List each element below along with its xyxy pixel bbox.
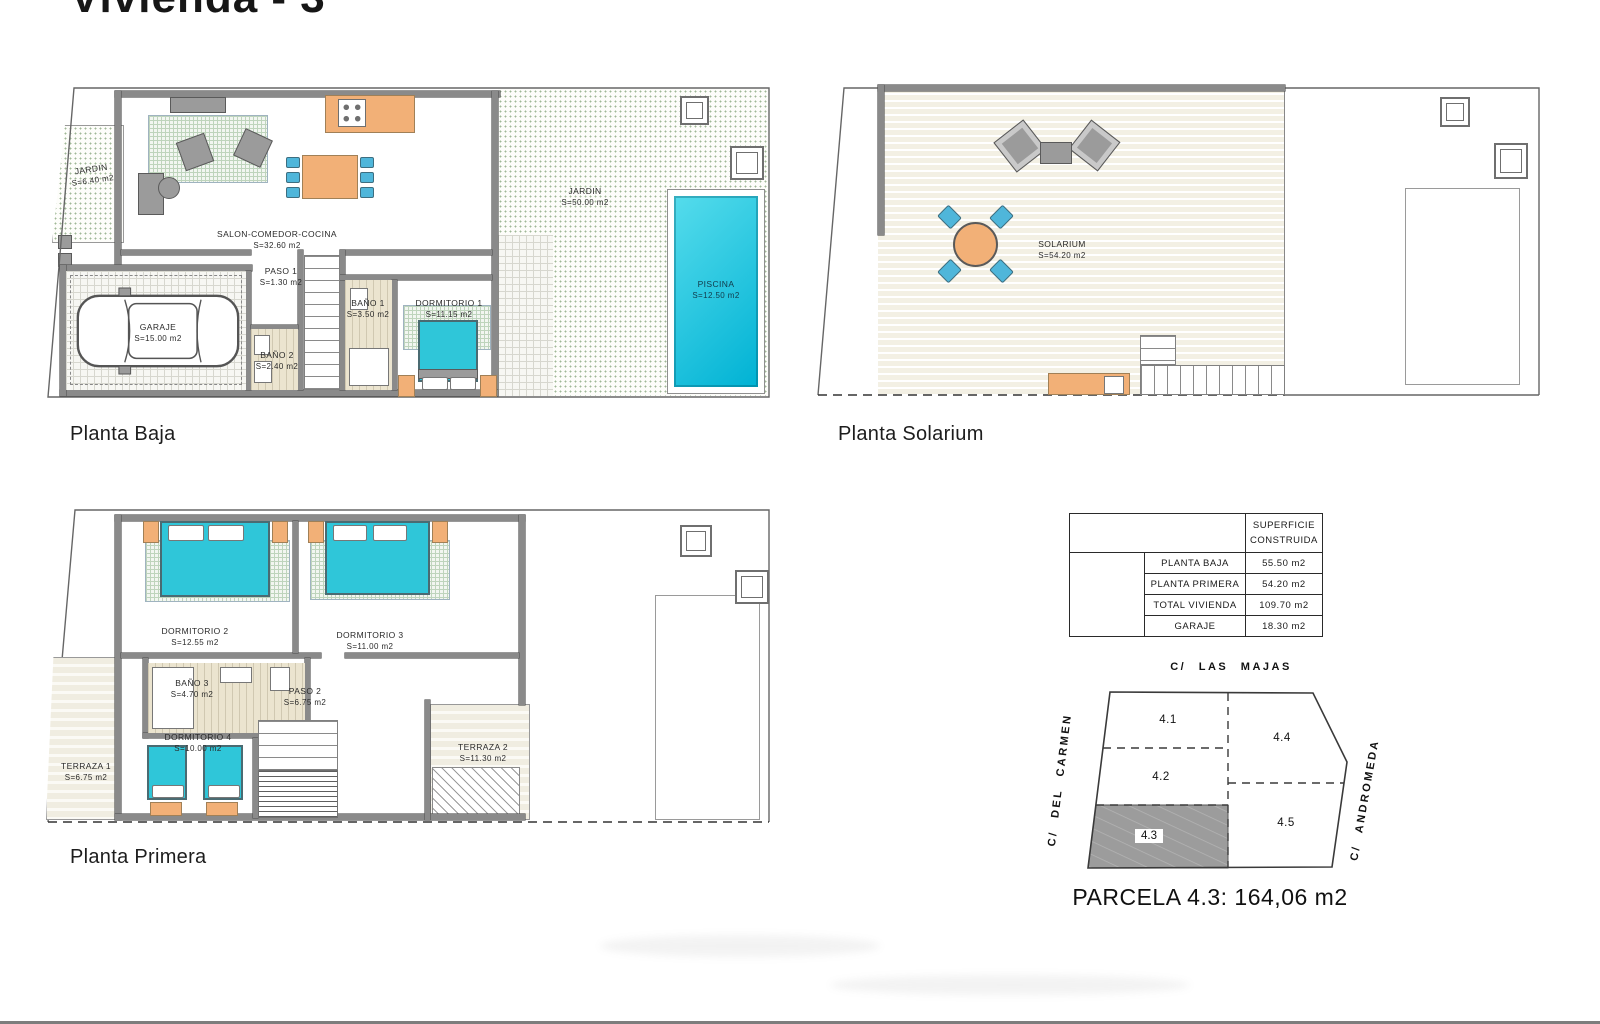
parcel-caption: PARCELA 4.3: 164,06 m2 — [1072, 884, 1347, 911]
rooflight-icon — [730, 146, 764, 180]
parcel-4-2: 4.2 — [1152, 771, 1170, 783]
stairs-upper — [1140, 335, 1176, 365]
room-label-paso2: PASO 2S=6.75 m2 — [284, 685, 327, 709]
surface-table: SUPERFICIE CONSTRUIDA PLANTA BAJA 55.50 … — [1069, 513, 1323, 637]
dining-chair — [286, 157, 300, 168]
pillow — [333, 525, 367, 541]
room-label-bano1: BAÑO 1S=3.50 m2 — [347, 297, 390, 321]
table-row-value: 54.20 m2 — [1246, 574, 1323, 595]
stove-icon — [338, 99, 366, 127]
pillow — [208, 785, 240, 798]
dining-chair — [360, 157, 374, 168]
wall — [340, 250, 492, 255]
stairs — [304, 255, 340, 390]
room-label-terraza1: TERRAZA 1S=6.75 m2 — [61, 760, 111, 784]
table-row-value: 109.70 m2 — [1246, 595, 1323, 616]
wall — [293, 521, 298, 653]
room-label-jardin: JARDINS=50.00 m2 — [561, 185, 608, 209]
stairs-lower — [258, 770, 338, 818]
room-label-garaje: GARAJES=15.00 m2 — [134, 321, 181, 345]
wall — [60, 390, 498, 396]
patio-table — [953, 222, 998, 267]
rooflight-icon — [735, 570, 769, 604]
dining-chair — [360, 172, 374, 183]
room-label-dorm4: DORMITORIO 4S=10.00 m2 — [165, 731, 232, 755]
rooflight-icon — [680, 96, 709, 125]
dining-table — [302, 155, 358, 199]
table-row-value: 18.30 m2 — [1246, 616, 1323, 637]
sink-icon — [1104, 376, 1124, 394]
wall — [115, 515, 121, 820]
pillow — [422, 377, 448, 390]
pillow — [373, 525, 407, 541]
room-label-dorm1: DORMITORIO 1S=11.15 m2 — [416, 297, 483, 321]
table-header: SUPERFICIE CONSTRUIDA — [1246, 514, 1323, 553]
parcel-4-1: 4.1 — [1159, 714, 1177, 726]
table-empty-header — [1070, 514, 1246, 553]
room-label-salon: SALON-COMEDOR-COCINAS=32.60 m2 — [217, 228, 337, 252]
nightstand — [432, 521, 448, 543]
table-row-label: TOTAL VIVIENDA — [1145, 595, 1246, 616]
scan-artifact — [830, 975, 1190, 995]
dining-chair — [286, 172, 300, 183]
room-label-bano2: BAÑO 2S=2.40 m2 — [256, 349, 299, 373]
wall — [115, 91, 121, 271]
room-label-piscina: PISCINAS=12.50 m2 — [692, 278, 739, 302]
dining-chair — [360, 187, 374, 198]
table-row-label: GARAJE — [1145, 616, 1246, 637]
room-label-dorm2: DORMITORIO 2S=12.55 m2 — [162, 625, 229, 649]
stairs — [258, 720, 338, 770]
nightstand — [206, 802, 238, 816]
table-row-label: PLANTA BAJA — [1145, 553, 1246, 574]
parcel-4-5: 4.5 — [1277, 817, 1295, 829]
rooflight-icon — [680, 525, 712, 557]
room-label-terraza2: TERRAZA 2S=11.30 m2 — [458, 741, 508, 765]
pillow — [450, 377, 476, 390]
room-label-dorm3: DORMITORIO 3S=11.00 m2 — [337, 629, 404, 653]
pillow — [208, 525, 244, 541]
scan-artifact — [600, 935, 880, 957]
caption-planta-solarium: Planta Solarium — [838, 423, 984, 446]
terrace1-floor — [46, 657, 120, 820]
plan-planta-solarium: SOLARIUMS=54.20 m2 — [810, 85, 1540, 410]
parcel-diagram: C/ LAS MAJAS C/ DEL CARMEN C/ ANDROMEDA … — [1030, 640, 1380, 920]
parcel-4-4: 4.4 — [1273, 732, 1291, 744]
wall — [878, 85, 884, 235]
wall — [345, 653, 519, 658]
plan-planta-primera: DORMITORIO 2S=12.55 m2 DORMITORIO 3S=11.… — [40, 505, 770, 850]
wall — [878, 85, 1285, 91]
rooflight-icon — [1494, 143, 1528, 179]
room-label-paso1: PASO 1S=1.30 m2 — [260, 265, 303, 289]
side-table — [1040, 142, 1072, 164]
void-over-pool — [1405, 188, 1520, 385]
caption-planta-primera: Planta Primera — [70, 846, 206, 869]
dining-chair — [286, 187, 300, 198]
nightstand — [308, 521, 324, 543]
nightstand — [143, 521, 159, 543]
table-row-label: PLANTA PRIMERA — [1145, 574, 1246, 595]
exterior-stairs — [432, 767, 520, 820]
room-label-solarium: SOLARIUMS=54.20 m2 — [1038, 238, 1086, 262]
wall — [392, 280, 397, 390]
wall — [121, 653, 321, 658]
page-title: Vivienda - 3 — [70, 0, 326, 23]
pillow — [152, 785, 184, 798]
parcel-4-3: 4.3 — [1135, 829, 1163, 843]
plan-planta-baja: JARDINS=6.40 m2 SALON-COMEDOR-COCINAS=32… — [40, 85, 770, 410]
void-over-pool — [655, 595, 760, 820]
wall — [425, 700, 430, 820]
nightstand — [272, 521, 288, 543]
coffee-table — [158, 177, 180, 199]
wall — [492, 91, 498, 396]
room-label-bano3: BAÑO 3S=4.70 m2 — [171, 677, 214, 701]
parcel-map — [1030, 640, 1380, 890]
table-row-value: 55.50 m2 — [1246, 553, 1323, 574]
wall — [519, 515, 525, 705]
rooflight-icon — [1440, 97, 1470, 127]
shower-icon — [349, 348, 389, 386]
tv-sideboard — [170, 97, 226, 113]
nightstand — [398, 375, 415, 397]
pillow — [168, 525, 204, 541]
nightstand — [150, 802, 182, 816]
caption-planta-baja: Planta Baja — [70, 423, 176, 446]
table-left-cell — [1070, 553, 1145, 637]
stairs — [1140, 365, 1285, 395]
nightstand — [480, 375, 497, 397]
sink-icon — [220, 667, 252, 683]
